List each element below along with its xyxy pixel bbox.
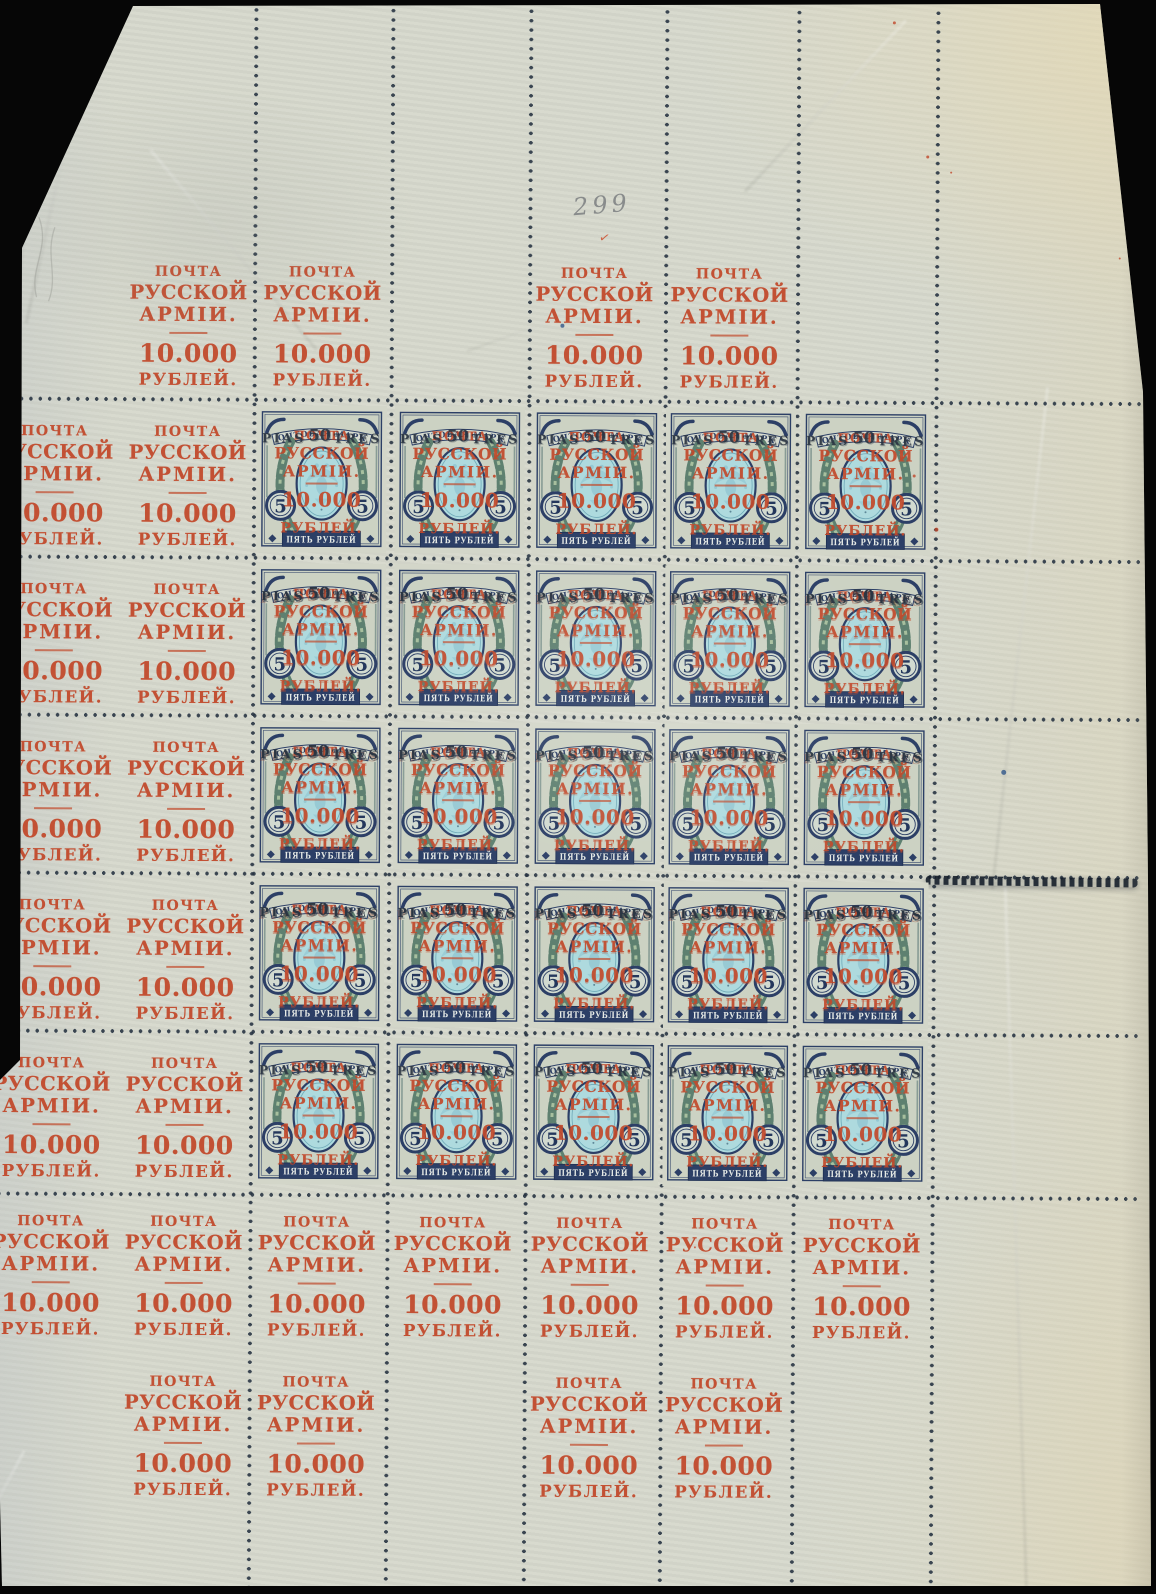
overprint-line-russkoi: РУССКОЙ bbox=[391, 762, 525, 778]
piastres-surcharge: PIAS 50 TRES bbox=[400, 426, 520, 447]
overprint-amount: 10.000 bbox=[388, 1292, 518, 1319]
piastres-surcharge: PIAS 50 TRES bbox=[669, 901, 789, 922]
surcharge-left: PIAS bbox=[669, 748, 713, 763]
overprint-line-armii: АРМІИ. bbox=[0, 780, 118, 801]
perforation-line-dark-segment bbox=[926, 876, 1138, 888]
overprint-rule bbox=[706, 1284, 744, 1286]
ink-speck bbox=[694, 1246, 696, 1248]
overprint-rule bbox=[710, 334, 748, 336]
overprint-line-russkoi: РУССКОЙ bbox=[0, 916, 118, 937]
overprint-line-russkoi: РУССКОЙ bbox=[796, 922, 930, 938]
overprint-line-armii: АРМІИ. bbox=[0, 464, 120, 485]
overprint-amount: 10.000 bbox=[254, 647, 388, 668]
piastres-surcharge: PIAS 50 TRES bbox=[537, 427, 657, 448]
surcharge-right: TRES bbox=[741, 749, 789, 764]
ink-speck bbox=[950, 172, 952, 174]
overprint-rule bbox=[580, 642, 612, 644]
overprint-line-armii: АРМІИ. bbox=[257, 305, 387, 326]
overprint-currency: РУБЛЕЙ. bbox=[0, 688, 119, 706]
overprint-line-russkoi: РУССКОЙ bbox=[797, 764, 931, 780]
overprint-rule bbox=[712, 1116, 744, 1118]
paper-crease bbox=[1004, 883, 1028, 1594]
surcharge-value: 50 bbox=[444, 900, 466, 919]
surcharge-left: PIAS bbox=[803, 1065, 847, 1080]
stamp: PIAS 50 TRES ПОЧТА РУССКОЙ АРМІИ. 10.000… bbox=[256, 563, 387, 711]
overprint-amount: 10.000 bbox=[118, 1450, 248, 1477]
overprint-line-russkoi: РУССКОЙ bbox=[252, 1233, 382, 1254]
margin-overprint-block: ПОЧТА РУССКОЙ АРМІИ. 10.000 РУБЛЕЙ. bbox=[524, 1217, 655, 1341]
sheet-content: 299 ✓ ПОЧТА РУССКОЙ АРМІИ. 10.000 РУБЛЕЙ… bbox=[0, 0, 1156, 1594]
overprint-rule bbox=[168, 649, 206, 651]
overprint-rule bbox=[441, 1115, 473, 1117]
overprint-line-armii: АРМІИ. bbox=[254, 621, 388, 637]
surcharge-right: TRES bbox=[874, 1065, 922, 1080]
overprint-currency: РУБЛЕЙ. bbox=[663, 681, 797, 696]
overprint-line-armii: АРМІИ. bbox=[799, 465, 933, 481]
stamp: PIAS 50 TRES ПОЧТА РУССКОЙ АРМІИ. 10.000… bbox=[531, 565, 662, 713]
surcharge-value: 50 bbox=[715, 902, 737, 921]
overprint-currency: РУБЛЕЙ. bbox=[527, 997, 661, 1012]
stamp-sheet-scan: 299 ✓ ПОЧТА РУССКОЙ АРМІИ. 10.000 РУБЛЕЙ… bbox=[0, 0, 1156, 1594]
overprint-line-russkoi: РУССКОЙ bbox=[798, 606, 932, 622]
overprint-line-armii: АРМІИ. bbox=[525, 1257, 655, 1278]
stamp: PIAS 50 TRES ПОЧТА РУССКОЙ АРМІИ. 10.000… bbox=[394, 564, 525, 712]
overprint-line-armii: АРМІИ. bbox=[393, 463, 527, 479]
stamp: PIAS 50 TRES ПОЧТА РУССКОЙ АРМІИ. 10.000… bbox=[528, 1039, 659, 1187]
overprint-currency: РУБЛЕЙ. bbox=[528, 839, 662, 854]
ink-speck bbox=[1119, 257, 1121, 259]
overprint-currency: РУБЛЕЙ. bbox=[392, 680, 526, 695]
stamp: PIAS 50 TRES ПОЧТА РУССКОЙ АРМІИ. 10.000… bbox=[256, 405, 387, 553]
overprint-line-russkoi: РУССКОЙ bbox=[524, 1394, 654, 1415]
stamp: PIAS 50 TRES ПОЧТА РУССКОЙ АРМІИ. 10.000… bbox=[253, 1037, 384, 1185]
overprint-rule bbox=[303, 1114, 335, 1116]
ink-speck bbox=[934, 528, 938, 532]
piastres-surcharge: PIAS 50 TRES bbox=[668, 1059, 788, 1080]
margin-overprint-block: ПОЧТА РУССКОЙ АРМІИ. 10.000 РУБЛЕЙ. bbox=[122, 583, 253, 707]
overprint-line-armii: АРМІИ. bbox=[796, 1097, 930, 1113]
margin-overprint-block: ПОЧТА РУССКОЙ АРМІИ. 10.000 РУБЛЕЙ. bbox=[119, 1057, 250, 1181]
surcharge-right: TRES bbox=[742, 591, 790, 606]
surcharge-left: PIAS bbox=[535, 748, 579, 763]
overprint-line-russkoi: РУССКОЙ bbox=[120, 916, 250, 937]
overprint-amount: 10.000 bbox=[251, 1121, 385, 1142]
piastres-surcharge: PIAS 50 TRES bbox=[670, 585, 790, 606]
overprint-currency: РУБЛЕЙ. bbox=[391, 838, 525, 853]
perforation-line-horizontal bbox=[0, 553, 1145, 564]
overprint-rule bbox=[36, 491, 74, 493]
overprint-amount: 10.000 bbox=[257, 341, 387, 368]
surcharge-right: TRES bbox=[469, 905, 517, 920]
surcharge-value: 50 bbox=[716, 744, 738, 763]
surcharge-value: 50 bbox=[445, 742, 467, 761]
overprint-amount: 10.000 bbox=[0, 1132, 116, 1159]
margin-overprint-block: ПОЧТА РУССКОЙ АРМІИ. 10.000 РУБЛЕЙ. bbox=[118, 1215, 249, 1339]
ink-speck bbox=[893, 21, 896, 24]
surcharge-value: 50 bbox=[852, 586, 874, 605]
overprint-amount: 10.000 bbox=[799, 492, 933, 513]
overprint-line-armii: АРМІИ. bbox=[255, 463, 389, 479]
overprint-rule bbox=[443, 641, 475, 643]
overprint-line-armii: АРМІИ. bbox=[527, 1096, 661, 1112]
overprint-amount: 10.000 bbox=[390, 964, 524, 985]
surcharge-value: 50 bbox=[581, 901, 603, 920]
surcharge-value: 50 bbox=[309, 426, 331, 445]
stamp: PIAS 50 TRES ПОЧТА РУССКОЙ АРМІИ. 10.000… bbox=[798, 882, 929, 1030]
margin-overprint-block: ПОЧТА РУССКОЙ АРМІИ. 10.000 РУБЛЕЙ. bbox=[251, 1215, 382, 1339]
overprint-line-armii: АРМІИ. bbox=[661, 939, 795, 955]
overprint-rule bbox=[714, 642, 746, 644]
surcharge-right: TRES bbox=[330, 1063, 378, 1078]
surcharge-left: PIAS bbox=[400, 431, 444, 446]
overprint-line-russkoi: РУССКОЙ bbox=[255, 445, 389, 461]
margin-overprint-block: ПОЧТА РУССКОЙ АРМІИ. 10.000 РУБЛЕЙ. bbox=[123, 265, 254, 389]
overprint-rule bbox=[33, 1123, 71, 1125]
overprint-currency: РУБЛЕЙ. bbox=[659, 1483, 789, 1501]
overprint-line-armii: АРМІИ. bbox=[524, 1417, 654, 1438]
surcharge-left: PIAS bbox=[805, 591, 849, 606]
overprint-amount: 10.000 bbox=[659, 1453, 789, 1480]
overprint-amount: 10.000 bbox=[122, 658, 252, 685]
overprint-rule bbox=[297, 1442, 335, 1444]
overprint-line-armii: АРМІИ. bbox=[796, 939, 930, 955]
overprint-amount: 10.000 bbox=[120, 974, 250, 1001]
overprint-line-pochta: ПОЧТА bbox=[530, 267, 660, 282]
surcharge-right: TRES bbox=[608, 590, 656, 605]
surcharge-left: PIAS bbox=[804, 907, 848, 922]
pencil-number: 299 bbox=[572, 189, 632, 222]
overprint-currency: РУБЛЕЙ. bbox=[254, 521, 388, 536]
margin-overprint-block: ПОЧТА РУССКОЙ АРМІИ. 10.000 РУБЛЕЙ. bbox=[0, 424, 120, 548]
overprint-line-russkoi: РУССКОЙ bbox=[252, 919, 386, 935]
overprint-amount: 10.000 bbox=[0, 1290, 116, 1317]
perforation-line-horizontal bbox=[0, 711, 1145, 722]
overprint-amount: 10.000 bbox=[663, 649, 797, 670]
overprint-rule bbox=[848, 801, 880, 803]
stamp: PIAS 50 TRES ПОЧТА РУССКОЙ АРМІИ. 10.000… bbox=[254, 879, 385, 1027]
overprint-rule bbox=[32, 1281, 70, 1283]
overprint-line-armii: АРМІИ. bbox=[392, 621, 526, 637]
surcharge-right: TRES bbox=[471, 589, 519, 604]
surcharge-value: 50 bbox=[853, 428, 875, 447]
overprint-amount: 10.000 bbox=[251, 1451, 381, 1478]
overprint-rule bbox=[434, 1283, 472, 1285]
piastres-surcharge: PIAS 50 TRES bbox=[397, 1058, 517, 1079]
surcharge-value: 50 bbox=[305, 1058, 327, 1077]
surcharge-value: 50 bbox=[443, 1058, 465, 1077]
overprint-currency: РУБЛЕЙ. bbox=[796, 998, 930, 1013]
overprint-amount: 10.000 bbox=[391, 806, 525, 827]
overprint-currency: РУБЛЕЙ. bbox=[663, 523, 797, 538]
overprint-line-armii: АРМІИ. bbox=[0, 622, 119, 643]
overprint-rule bbox=[165, 1281, 203, 1283]
overprint-rule bbox=[575, 333, 613, 335]
margin-overprint-block: ПОЧТА РУССКОЙ АРМІИ. 10.000 РУБЛЕЙ. bbox=[0, 740, 118, 864]
overprint-amount: 10.000 bbox=[661, 965, 795, 986]
overprint-rule bbox=[571, 1283, 609, 1285]
surcharge-value: 50 bbox=[714, 1060, 736, 1079]
overprint-currency: РУБЛЕЙ. bbox=[796, 1324, 926, 1342]
margin-overprint-block: ПОЧТА РУССКОЙ АРМІИ. 10.000 РУБЛЕЙ. bbox=[118, 1375, 249, 1499]
piastres-surcharge: PIAS 50 TRES bbox=[399, 584, 519, 605]
overprint-line-armii: АРМІИ. bbox=[0, 1096, 117, 1117]
overprint-line-armii: АРМІИ. bbox=[662, 781, 796, 797]
surcharge-value: 50 bbox=[850, 902, 872, 921]
piastres-surcharge: PIAS 50 TRES bbox=[260, 741, 380, 762]
surcharge-right: TRES bbox=[876, 749, 924, 764]
overprint-currency: РУБЛЕЙ. bbox=[392, 522, 526, 537]
surcharge-right: TRES bbox=[609, 432, 657, 447]
stamp: PIAS 50 TRES ПОЧТА РУССКОЙ АРМІИ. 10.000… bbox=[665, 565, 796, 713]
overprint-rule bbox=[303, 956, 335, 958]
overprint-line-armii: АРМІИ. bbox=[253, 779, 387, 795]
stamp: PIAS 50 TRES ПОЧТА РУССКОЙ АРМІИ. 10.000… bbox=[797, 1040, 928, 1188]
overprint-line-pochta: ПОЧТА bbox=[659, 1377, 789, 1392]
overprint-currency: РУБЛЕЙ. bbox=[252, 995, 386, 1010]
overprint-line-pochta: ПОЧТА bbox=[0, 740, 118, 755]
margin-overprint-block: ПОЧТА РУССКОЙ АРМІИ. 10.000 РУБЛЕЙ. bbox=[120, 899, 251, 1023]
overprint-currency: РУБЛЕЙ. bbox=[119, 1163, 249, 1181]
overprint-line-russkoi: РУССКОЙ bbox=[392, 604, 526, 620]
overprint-amount: 10.000 bbox=[797, 1294, 927, 1321]
overprint-rule bbox=[33, 965, 71, 967]
overprint-rule bbox=[713, 800, 745, 802]
overprint-line-pochta: ПОЧТА bbox=[258, 265, 388, 280]
overprint-line-russkoi: РУССКОЙ bbox=[661, 1079, 795, 1095]
overprint-amount: 10.000 bbox=[664, 343, 794, 370]
overprint-amount: 10.000 bbox=[796, 966, 930, 987]
stamp: PIAS 50 TRES ПОЧТА РУССКОЙ АРМІИ. 10.000… bbox=[799, 724, 930, 872]
piastres-surcharge: PIAS 50 TRES bbox=[804, 744, 924, 765]
overprint-currency: РУБЛЕЙ. bbox=[251, 1153, 385, 1168]
ink-speck bbox=[926, 156, 929, 159]
surcharge-left: PIAS bbox=[536, 590, 580, 605]
overprint-line-armii: АРМІИ. bbox=[121, 781, 251, 802]
overprint-line-armii: АРМІИ. bbox=[661, 1097, 795, 1113]
overprint-line-russkoi: РУССКОЙ bbox=[119, 1232, 249, 1253]
overprint-line-armii: АРМІИ. bbox=[123, 465, 253, 486]
surcharge-right: TRES bbox=[878, 433, 926, 448]
overprint-amount: 10.000 bbox=[255, 489, 389, 510]
overprint-rule bbox=[166, 965, 204, 967]
overprint-line-russkoi: РУССКОЙ bbox=[0, 1074, 117, 1095]
overprint-rule bbox=[34, 807, 72, 809]
overprint-currency: РУБЛЕЙ. bbox=[387, 1322, 517, 1340]
overprint-currency: РУБЛЕЙ. bbox=[389, 1154, 523, 1169]
surcharge-right: TRES bbox=[740, 907, 788, 922]
overprint-currency: РУБЛЕЙ. bbox=[0, 1320, 116, 1338]
surcharge-left: PIAS bbox=[671, 432, 715, 447]
overprint-line-armii: АРМІИ. bbox=[119, 1255, 249, 1276]
overprint-rule bbox=[441, 957, 473, 959]
overprint-line-armii: АРМІИ. bbox=[390, 937, 524, 953]
overprint-line-armii: АРМІИ. bbox=[123, 305, 253, 326]
overprint-line-pochta: ПОЧТА bbox=[251, 1375, 381, 1390]
overprint-line-armii: АРМІИ. bbox=[390, 1095, 524, 1111]
overprint-line-armii: АРМІИ. bbox=[527, 938, 661, 954]
surcharge-left: PIAS bbox=[399, 589, 443, 604]
margin-overprint-block: ПОЧТА РУССКОЙ АРМІИ. 10.000 РУБЛЕЙ. bbox=[257, 265, 388, 389]
stamp: PIAS 50 TRES ПОЧТА РУССКОЙ АРМІИ. 10.000… bbox=[800, 408, 931, 556]
surcharge-left: PIAS bbox=[670, 590, 714, 605]
surcharge-left: PIAS bbox=[261, 588, 305, 603]
overprint-currency: РУБЛЕЙ. bbox=[251, 1321, 381, 1339]
margin-overprint-block: ПОЧТА РУССКОЙ АРМІИ. 10.000 РУБЛЕЙ. bbox=[0, 898, 118, 1022]
stamp: PIAS 50 TRES ПОЧТА РУССКОЙ АРМІИ. 10.000… bbox=[531, 407, 662, 555]
overprint-line-armii: АРМІИ. bbox=[797, 1258, 927, 1279]
overprint-amount: 10.000 bbox=[253, 805, 387, 826]
overprint-currency: РУБЛЕЙ. bbox=[664, 373, 794, 391]
overprint-rule bbox=[442, 799, 474, 801]
overprint-line-russkoi: РУССКОЙ bbox=[124, 282, 254, 303]
overprint-currency: РУБЛЕЙ. bbox=[661, 997, 795, 1012]
margin-overprint-block: ПОЧТА РУССКОЙ АРМІИ. 10.000 РУБЛЕЙ. bbox=[251, 1375, 382, 1499]
overprint-line-pochta: ПОЧТА bbox=[122, 583, 252, 598]
surcharge-right: TRES bbox=[605, 1064, 653, 1079]
overprint-currency: РУБЛЕЙ. bbox=[529, 523, 663, 538]
overprint-currency: РУБЛЕЙ. bbox=[254, 679, 388, 694]
overprint-line-armii: АРМІИ. bbox=[659, 1417, 789, 1438]
overprint-line-armii: АРМІИ. bbox=[797, 781, 931, 797]
overprint-currency: РУБЛЕЙ. bbox=[121, 847, 251, 865]
overprint-amount: 10.000 bbox=[530, 491, 664, 512]
surcharge-left: PIAS bbox=[260, 746, 304, 761]
surcharge-value: 50 bbox=[307, 742, 329, 761]
surcharge-right: TRES bbox=[333, 589, 381, 604]
overprint-currency: РУБЛЕЙ. bbox=[251, 1481, 381, 1499]
piastres-surcharge: PIAS 50 TRES bbox=[261, 583, 381, 604]
overprint-line-armii: АРМІИ. bbox=[0, 938, 117, 959]
overprint-line-armii: АРМІИ. bbox=[118, 1415, 248, 1436]
overprint-amount: 10.000 bbox=[252, 963, 386, 984]
piastres-surcharge: PIAS 50 TRES bbox=[803, 1060, 923, 1081]
overprint-amount: 10.000 bbox=[0, 500, 120, 527]
surcharge-left: PIAS bbox=[804, 749, 848, 764]
overprint-currency: РУБЛЕЙ. bbox=[0, 1004, 117, 1022]
surcharge-value: 50 bbox=[446, 584, 468, 603]
surcharge-left: PIAS bbox=[398, 905, 442, 920]
piastres-surcharge: PIAS 50 TRES bbox=[398, 900, 518, 921]
overprint-rule bbox=[444, 483, 476, 485]
overprint-line-russkoi: РУССКОЙ bbox=[528, 763, 662, 779]
overprint-amount: 10.000 bbox=[119, 1290, 249, 1317]
overprint-amount: 10.000 bbox=[524, 1452, 654, 1479]
piastres-surcharge: PIAS 50 TRES bbox=[260, 899, 380, 920]
overprint-amount: 10.000 bbox=[528, 807, 662, 828]
surcharge-right: TRES bbox=[332, 747, 380, 762]
surcharge-left: PIAS bbox=[806, 433, 850, 448]
overprint-line-pochta: ПОЧТА bbox=[123, 425, 253, 440]
stamp: PIAS 50 TRES ПОЧТА РУССКОЙ АРМІИ. 10.000… bbox=[255, 721, 386, 869]
overprint-currency: РУБЛЕЙ. bbox=[0, 846, 118, 864]
overprint-line-armii: АРМІИ. bbox=[251, 1415, 381, 1436]
overprint-line-armii: АРМІИ. bbox=[529, 622, 663, 638]
overprint-line-armii: АРМІИ. bbox=[120, 939, 250, 960]
piastres-surcharge: PIAS 50 TRES bbox=[806, 428, 926, 449]
overprint-amount: 10.000 bbox=[121, 816, 251, 843]
surcharge-right: TRES bbox=[468, 1063, 516, 1078]
overprint-currency: РУБЛЕЙ. bbox=[659, 1323, 789, 1341]
overprint-line-russkoi: РУССКОЙ bbox=[120, 1074, 250, 1095]
overprint-line-armii: АРМІИ. bbox=[798, 623, 932, 639]
overprint-line-pochta: ПОЧТА bbox=[118, 1375, 248, 1390]
overprint-line-armii: АРМІИ. bbox=[664, 307, 794, 328]
overprint-amount: 10.000 bbox=[525, 1292, 655, 1319]
paper-crease bbox=[744, 19, 907, 192]
overprint-currency: РУБЛЕЙ. bbox=[526, 1155, 660, 1170]
overprint-line-russkoi: РУССКОЙ bbox=[530, 447, 664, 463]
overprint-rule bbox=[847, 1117, 879, 1119]
overprint-line-armii: АРМІИ. bbox=[664, 465, 798, 481]
overprint-currency: РУБЛЕЙ. bbox=[795, 1156, 929, 1171]
overprint-line-armii: АРМІИ. bbox=[0, 1254, 116, 1275]
surcharge-right: TRES bbox=[607, 748, 655, 763]
overprint-line-russkoi: РУССКОЙ bbox=[251, 1393, 381, 1414]
overprint-line-pochta: ПОЧТА bbox=[119, 1215, 249, 1230]
overprint-currency: РУБЛЕЙ. bbox=[118, 1321, 248, 1339]
overprint-currency: РУБЛЕЙ. bbox=[798, 682, 932, 697]
piastres-surcharge: PIAS 50 TRES bbox=[259, 1057, 379, 1078]
piastres-surcharge: PIAS 50 TRES bbox=[804, 902, 924, 923]
overprint-line-armii: АРМІИ. bbox=[388, 1256, 518, 1277]
overprint-amount: 10.000 bbox=[393, 490, 527, 511]
overprint-line-pochta: ПОЧТА bbox=[660, 1217, 790, 1232]
overprint-line-russkoi: РУССКОЙ bbox=[118, 1392, 248, 1413]
overprint-line-russkoi: РУССКОЙ bbox=[121, 758, 251, 779]
overprint-line-russkoi: РУССКОЙ bbox=[0, 758, 118, 779]
surcharge-left: PIAS bbox=[260, 904, 304, 919]
overprint-currency: РУБЛЕЙ. bbox=[123, 371, 253, 389]
sheet-paper: 299 ✓ ПОЧТА РУССКОЙ АРМІИ. 10.000 РУБЛЕЙ… bbox=[0, 0, 1156, 1594]
surcharge-right: TRES bbox=[331, 905, 379, 920]
surcharge-value: 50 bbox=[717, 586, 739, 605]
overprint-line-russkoi: РУССКОЙ bbox=[254, 603, 388, 619]
overprint-line-pochta: ПОЧТА bbox=[0, 582, 119, 597]
stamp: PIAS 50 TRES ПОЧТА РУССКОЙ АРМІИ. 10.000… bbox=[663, 881, 794, 1029]
piastres-surcharge: PIAS 50 TRES bbox=[669, 743, 789, 764]
overprint-rule bbox=[578, 1116, 610, 1118]
overprint-line-armii: АРМІИ. bbox=[120, 1097, 250, 1118]
overprint-amount: 10.000 bbox=[797, 808, 931, 829]
surcharge-right: TRES bbox=[743, 433, 791, 448]
surcharge-right: TRES bbox=[877, 591, 925, 606]
perforation-line-horizontal bbox=[0, 1190, 1142, 1201]
overprint-line-russkoi: РУССКОЙ bbox=[665, 285, 795, 306]
margin-overprint-block: ПОЧТА РУССКОЙ АРМІИ. 10.000 РУБЛЕЙ. bbox=[0, 1214, 116, 1338]
overprint-line-russkoi: РУССКОЙ bbox=[527, 921, 661, 937]
overprint-currency: РУБЛЕЙ. bbox=[662, 839, 796, 854]
overprint-amount: 10.000 bbox=[529, 342, 659, 369]
overprint-line-armii: АРМІИ. bbox=[529, 307, 659, 328]
overprint-currency: РУБЛЕЙ. bbox=[257, 371, 387, 389]
overprint-rule bbox=[581, 484, 613, 486]
margin-overprint-block: ПОЧТА РУССКОЙ АРМІИ. 10.000 РУБЛЕЙ. bbox=[524, 1377, 655, 1501]
overprint-rule bbox=[579, 800, 611, 802]
piastres-surcharge: PIAS 50 TRES bbox=[671, 427, 791, 448]
overprint-rule bbox=[169, 491, 207, 493]
overprint-amount: 10.000 bbox=[123, 340, 253, 367]
overprint-line-russkoi: РУССКОЙ bbox=[388, 1234, 518, 1255]
stamp: PIAS 50 TRES ПОЧТА РУССКОЙ АРМІИ. 10.000… bbox=[662, 1039, 793, 1187]
margin-overprint-block: ПОЧТА РУССКОЙ АРМІИ. 10.000 РУБЛЕЙ. bbox=[0, 1056, 117, 1180]
overprint-amount: 10.000 bbox=[660, 1293, 790, 1320]
overprint-line-pochta: ПОЧТА bbox=[121, 741, 251, 756]
overprint-line-armii: АРМІИ. bbox=[252, 937, 386, 953]
piastres-surcharge: PIAS 50 TRES bbox=[534, 1059, 654, 1080]
stamp: PIAS 50 TRES ПОЧТА РУССКОЙ АРМІИ. 10.000… bbox=[664, 723, 795, 871]
overprint-currency: РУБЛЕЙ. bbox=[798, 524, 932, 539]
overprint-line-pochta: ПОЧТА bbox=[0, 424, 120, 439]
